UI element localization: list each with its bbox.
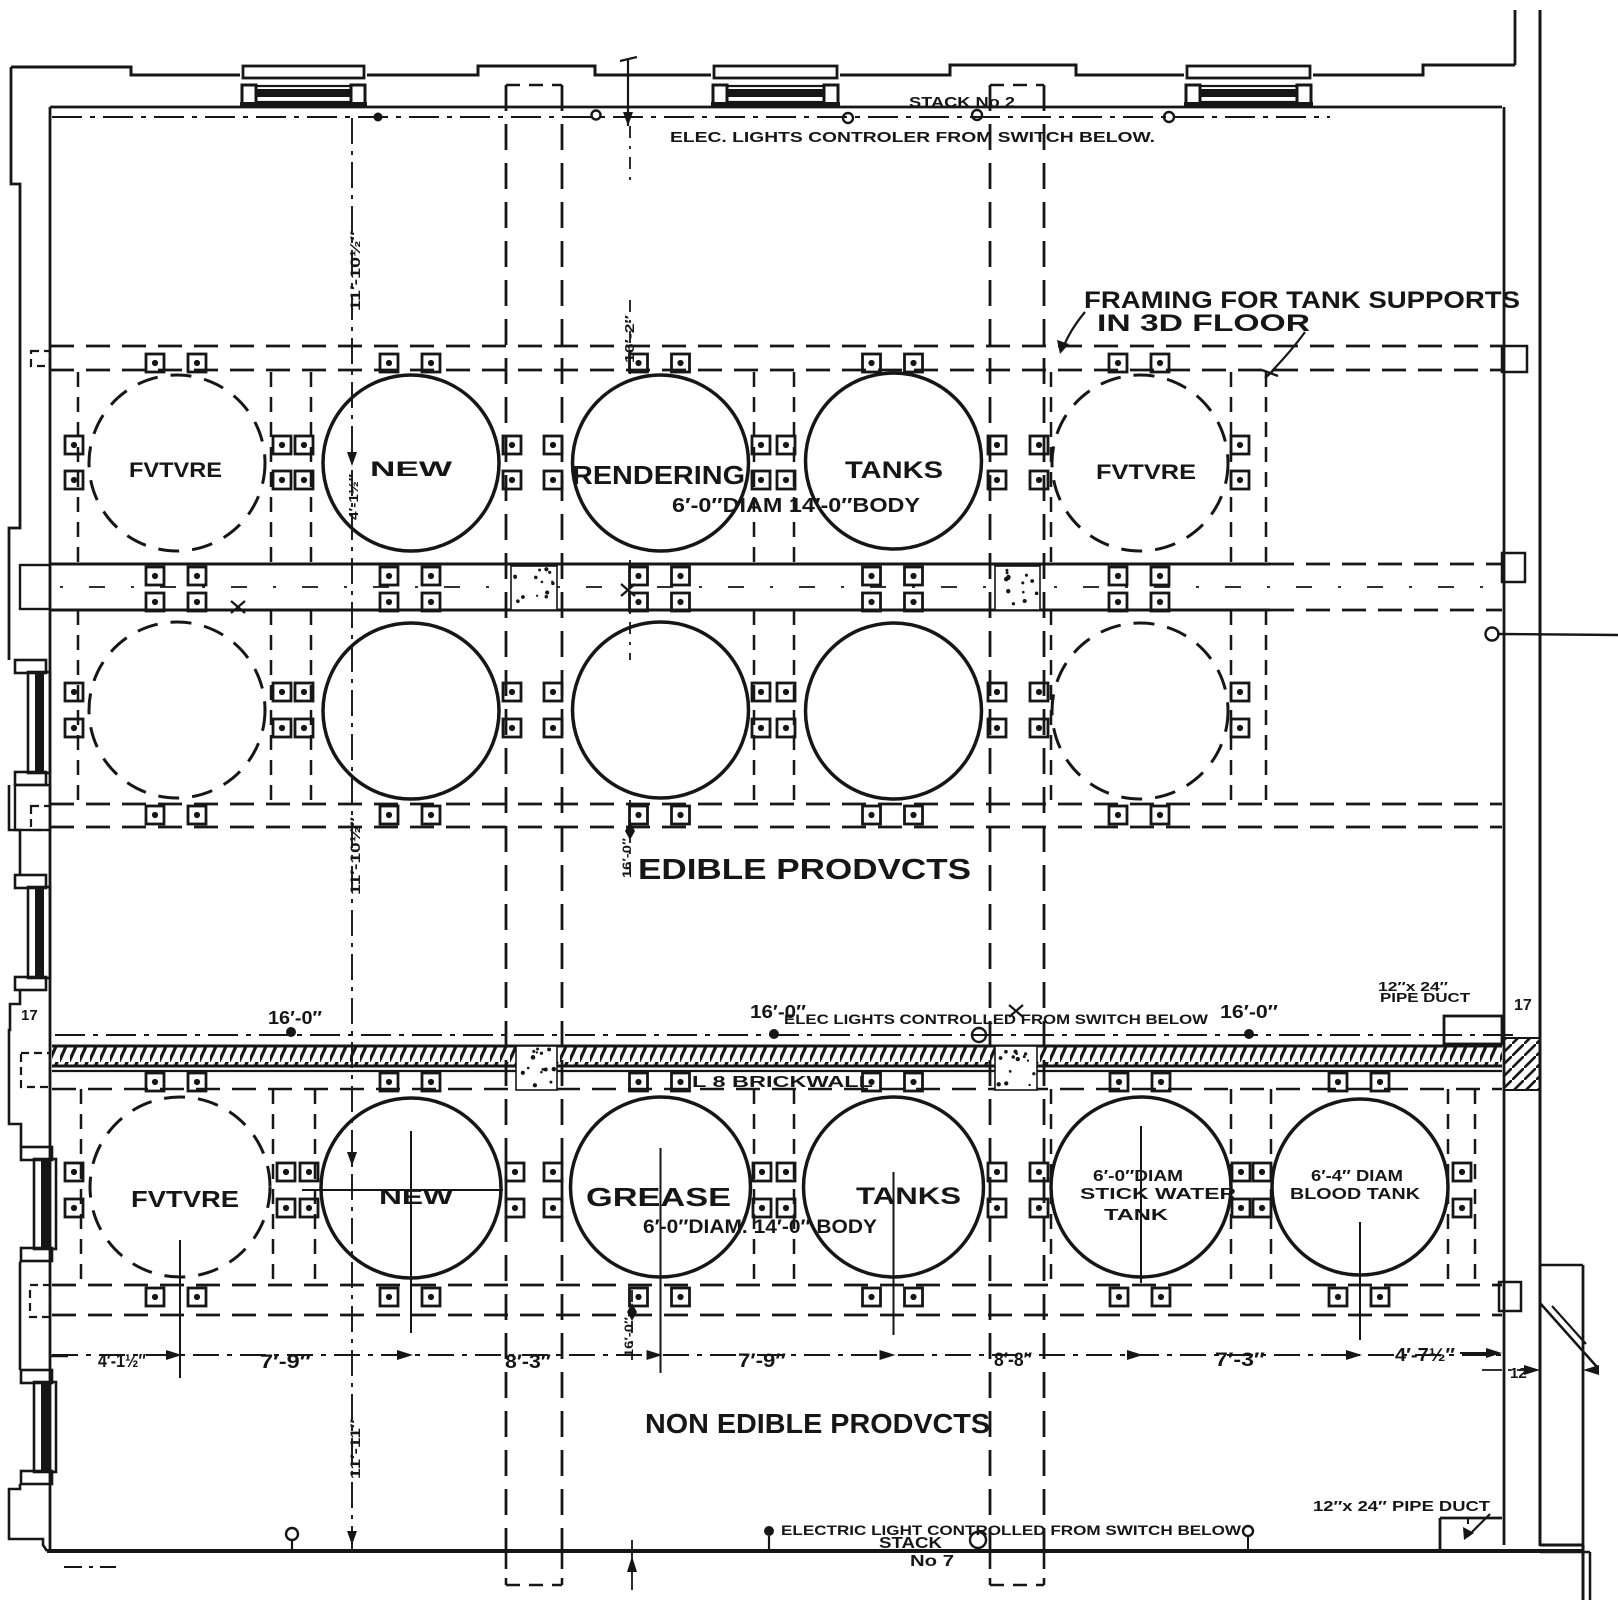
svg-text:6′-4″ DIAM: 6′-4″ DIAM [1311, 1168, 1403, 1185]
svg-text:16′-0″: 16′-0″ [620, 838, 634, 878]
svg-text:8′-3″: 8′-3″ [505, 1352, 551, 1373]
svg-text:FVTVRE: FVTVRE [131, 1186, 239, 1212]
svg-text:TANK: TANK [1104, 1207, 1169, 1224]
svg-text:12: 12 [1510, 1365, 1527, 1382]
svg-text:4′-7½″: 4′-7½″ [1395, 1345, 1455, 1365]
svg-text:16′-0″: 16′-0″ [622, 1317, 636, 1357]
svg-text:17: 17 [1514, 997, 1532, 1014]
svg-text:6′-0″DIAM 14′-0″BODY: 6′-0″DIAM 14′-0″BODY [672, 495, 921, 517]
svg-text:12″x 24″ PIPE DUCT: 12″x 24″ PIPE DUCT [1313, 1498, 1490, 1515]
svg-text:8′-8″: 8′-8″ [994, 1350, 1032, 1371]
svg-text:16′-0″: 16′-0″ [268, 1008, 322, 1028]
svg-text:ELEC LIGHTS CONTROLLED FROM SW: ELEC LIGHTS CONTROLLED FROM SWITCH BELOW [784, 1011, 1209, 1027]
svg-text:EDIBLE PRODVCTS: EDIBLE PRODVCTS [638, 854, 971, 886]
svg-text:17: 17 [21, 1007, 38, 1024]
svg-text:11′-11″: 11′-11″ [347, 1419, 363, 1479]
svg-text:7′-9″: 7′-9″ [260, 1352, 311, 1373]
svg-text:NON EDIBLE PRODVCTS: NON EDIBLE PRODVCTS [645, 1408, 990, 1439]
svg-text:TANKS: TANKS [856, 1183, 961, 1210]
svg-text:FVTVRE: FVTVRE [1096, 461, 1196, 484]
svg-text:7′-9″: 7′-9″ [738, 1351, 786, 1372]
svg-text:No 7: No 7 [910, 1553, 954, 1570]
svg-text:TANKS: TANKS [845, 457, 943, 484]
svg-text:NEW: NEW [370, 458, 452, 481]
svg-text:PIPE DUCT: PIPE DUCT [1380, 990, 1470, 1005]
svg-text:4′-1½″: 4′-1½″ [98, 1351, 146, 1371]
svg-text:11′-10½″: 11′-10½″ [347, 817, 363, 895]
svg-text:7′-3″: 7′-3″ [1215, 1350, 1265, 1371]
svg-text:BLOOD TANK: BLOOD TANK [1290, 1186, 1421, 1203]
svg-text:STICK WATER: STICK WATER [1080, 1186, 1237, 1203]
svg-text:ELECTRIC LIGHT CONTROLLED FROM: ELECTRIC LIGHT CONTROLLED FROM SWITCH BE… [781, 1522, 1242, 1538]
svg-text:STACK: STACK [879, 1535, 943, 1552]
svg-text:NEW: NEW [379, 1186, 453, 1209]
svg-text:L 8 BRICKWALL: L 8 BRICKWALL [692, 1074, 873, 1091]
svg-text:FVTVRE: FVTVRE [129, 459, 222, 482]
svg-text:6′-0″DIAM: 6′-0″DIAM [1093, 1168, 1183, 1185]
svg-text:ELEC. LIGHTS CONTROLER FROM SW: ELEC. LIGHTS CONTROLER FROM SWITCH BELOW… [670, 129, 1155, 146]
svg-text:IN 3D FLOOR: IN 3D FLOOR [1097, 310, 1310, 337]
svg-text:6′-0″DIAM. 14′-0″ BODY: 6′-0″DIAM. 14′-0″ BODY [643, 1217, 877, 1238]
svg-text:16′-0″: 16′-0″ [1220, 1002, 1278, 1022]
svg-text:RENDERING: RENDERING [572, 460, 745, 490]
svg-text:16′-2″: 16′-2″ [622, 315, 637, 363]
svg-text:4′-1½″: 4′-1½″ [346, 474, 361, 520]
svg-text:GREASE: GREASE [586, 1182, 731, 1212]
svg-text:11′-10½″: 11′-10½″ [347, 231, 363, 311]
svg-text:STACK No 2: STACK No 2 [909, 94, 1015, 111]
